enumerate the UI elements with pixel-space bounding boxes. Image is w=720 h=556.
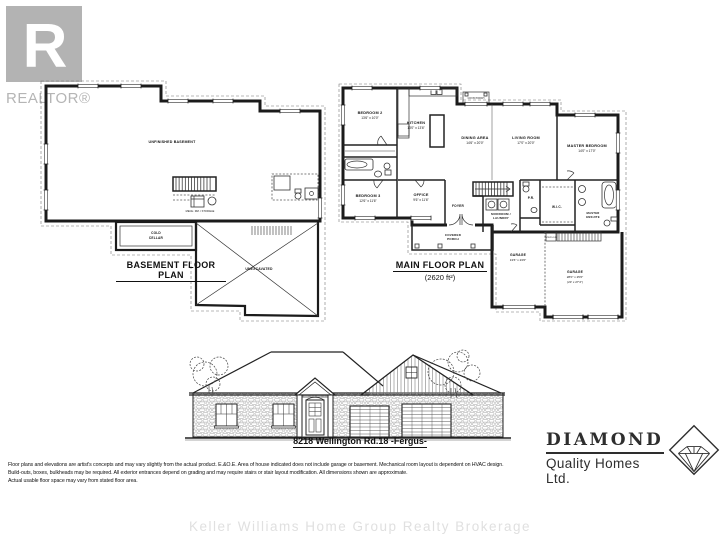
label-ensuite2: ENSUITE (586, 215, 600, 219)
gable (361, 355, 473, 395)
main-plan-title-block: MAIN FLOOR PLAN (2620 ft²) (390, 260, 490, 282)
garage-walls (492, 232, 622, 317)
label-office-dims: 9'6" x 11'6" (413, 198, 428, 202)
disclaimer-line-3: Actual usable floor space may vary from … (8, 477, 708, 485)
tree-left-icon (190, 357, 228, 394)
window-icon (575, 113, 595, 118)
window-icon (503, 102, 523, 107)
label-bedroom2: BEDROOM 2 (358, 111, 383, 115)
garage-door-icon (588, 315, 618, 320)
label-garage-main: GARAGE (567, 270, 584, 274)
kitchen-counters (398, 88, 457, 147)
furnace-icon (191, 196, 216, 207)
floorplan-sheet: R REALTOR® (0, 0, 720, 556)
door-icon (415, 180, 424, 187)
garage-door-icon (503, 305, 535, 310)
porch-column (328, 395, 333, 437)
window-icon (616, 190, 621, 210)
label-cold: COLD (151, 231, 161, 235)
window-icon (44, 190, 49, 210)
window-icon (530, 102, 550, 107)
window-icon (355, 216, 375, 221)
brokerage-watermark: Keller Williams Home Group Realty Broker… (0, 519, 720, 534)
label-unexcavated: UNEXCAVATED (245, 267, 273, 271)
garage-door-2-icon (402, 404, 451, 437)
front-door-icon (306, 397, 324, 435)
door-icon (378, 136, 387, 145)
window-icon (44, 144, 49, 164)
label-bedroom2-dims: 13'6" x 10'0" (361, 116, 378, 120)
label-powder: P.R. (528, 196, 535, 200)
basement-overhang-dashed (41, 81, 325, 321)
main-floor-plan-drawing: COV'D PORCH STEPS DN (335, 75, 645, 330)
window-left-icon (215, 404, 239, 428)
property-address: 8218 Wellington Rd.18 -Fergus- (285, 436, 435, 448)
label-garage-main-dims: 28'0" x 25'0" (567, 275, 583, 279)
label-rear-porch: COV'D PORCH (468, 97, 485, 100)
label-master: MASTER BEDROOM (567, 144, 607, 148)
window-icon (213, 99, 233, 104)
door-icon (567, 171, 574, 180)
label-bedroom3-dims: 12'6" x 11'6" (359, 199, 376, 203)
window-icon (121, 84, 141, 89)
label-steps-dn: STEPS DN (546, 237, 557, 239)
main-plan-area: (2620 ft²) (390, 273, 490, 282)
label-living-dims: 17'0" x 20'0" (517, 141, 534, 145)
window-icon (341, 185, 346, 205)
label-dining-dims: 14'6" x 20'0" (466, 141, 483, 145)
front-door-icon (447, 214, 475, 228)
interior-walls (343, 88, 618, 232)
label-foyer: FOYER (452, 204, 464, 208)
basement-floor-plan-drawing: UNFINISHED BASEMENT COLD CELLAR UNEXCAVA… (28, 50, 338, 340)
window-mid-icon (272, 404, 296, 428)
main-bath-fixtures (345, 159, 391, 177)
label-unfinished-basement: UNFINISHED BASEMENT (149, 140, 197, 144)
window-icon (411, 216, 431, 221)
disclaimer-line-1: Floor plans and elevations are artist's … (8, 461, 708, 469)
label-living: LIVING ROOM (512, 136, 540, 140)
label-laundry: LAUNDRY (493, 216, 509, 220)
label-porch2: PORCH (447, 237, 459, 241)
label-wic: W.I.C. (552, 205, 562, 209)
house-elevation-drawing (183, 342, 513, 444)
label-office: OFFICE (413, 193, 428, 197)
window-icon (616, 133, 621, 153)
bath-rough-in (272, 174, 318, 200)
label-garage-single-dims: 13'6" x 23'0" (510, 258, 526, 262)
stone-wall (193, 393, 503, 437)
label-garage-main-note: (23' x 27'4") (567, 280, 583, 284)
main-exterior-walls (343, 88, 618, 232)
garage-door-icon (553, 315, 583, 320)
window-icon (420, 86, 440, 91)
window-icon (78, 84, 98, 89)
porch-column (297, 395, 302, 437)
main-stairs-icon (473, 182, 513, 196)
window-icon (341, 105, 346, 125)
disclaimer-line-2: Build-outs, boxes, bulkheads may be requ… (8, 469, 708, 477)
laundry-fixtures (486, 199, 509, 210)
label-cellar: CELLAR (149, 236, 164, 240)
label-kitchen: KITCHEN (407, 121, 425, 125)
label-dining: DINING AREA (461, 136, 488, 140)
label-mech-room: MECH. RM. / STORAGE (186, 209, 215, 213)
patio-door-icon (465, 102, 487, 107)
garage-door-1-icon (350, 406, 389, 437)
entry (295, 378, 335, 440)
label-kitchen-dims: 13'0" x 13'6" (407, 126, 424, 130)
footing-hatch (252, 226, 291, 235)
label-master-dims: 14'0" x 17'0" (578, 149, 595, 153)
label-bedroom3: BEDROOM 3 (356, 194, 381, 198)
ensuite-fixtures (579, 182, 618, 226)
builder-name: DIAMOND (546, 430, 664, 454)
door-icon (374, 180, 383, 188)
window-icon (168, 99, 188, 104)
window-icon (352, 86, 372, 91)
main-plan-title: MAIN FLOOR PLAN (393, 260, 488, 272)
disclaimer: Floor plans and elevations are artist's … (8, 461, 708, 485)
basement-plan-title: BASEMENT FLOOR PLAN (116, 260, 226, 282)
window-icon (318, 198, 323, 218)
label-garage-single: GARAGE (510, 253, 527, 257)
window-icon (280, 109, 300, 114)
